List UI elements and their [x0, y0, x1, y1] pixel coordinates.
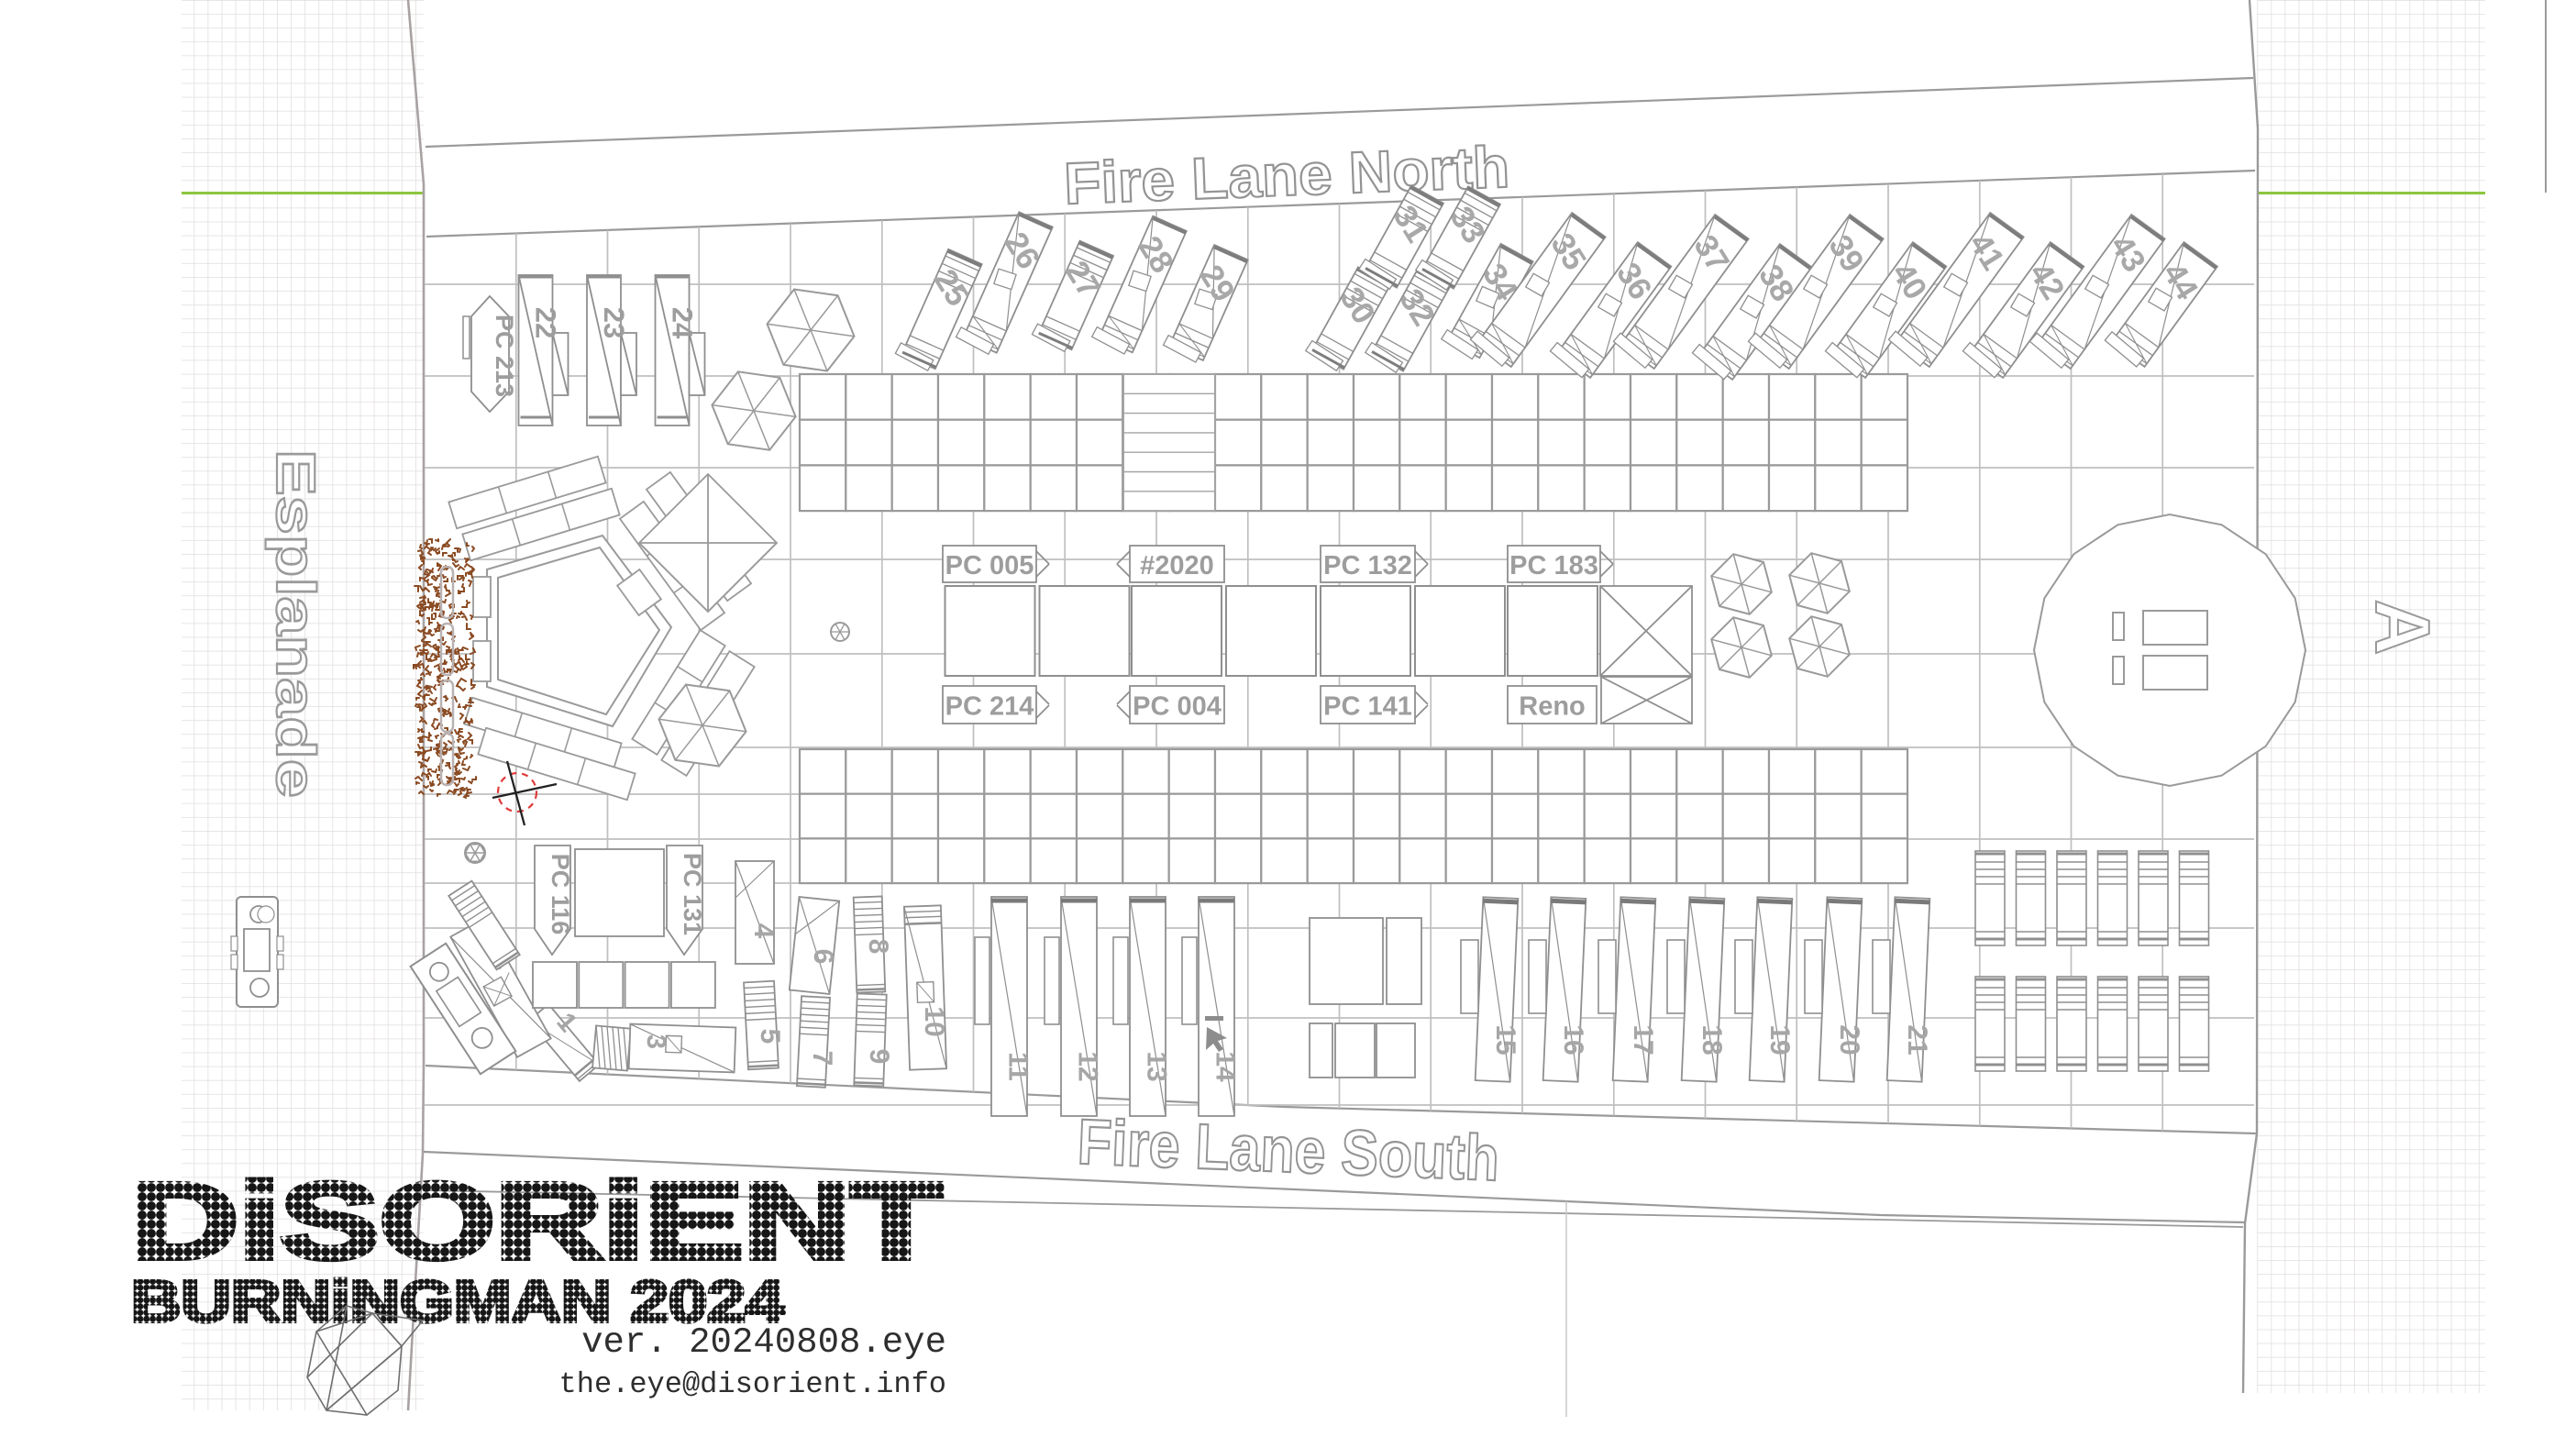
- svg-text:PC 132: PC 132: [1323, 551, 1412, 580]
- svg-text:19: 19: [1764, 1024, 1795, 1055]
- svg-text:9: 9: [864, 1049, 894, 1065]
- svg-text:15: 15: [1490, 1024, 1520, 1055]
- svg-text:24: 24: [667, 307, 699, 339]
- svg-text:Esplanade: Esplanade: [265, 449, 326, 798]
- svg-text:6: 6: [808, 949, 838, 965]
- svg-text:PC 004: PC 004: [1133, 692, 1222, 722]
- svg-text:10: 10: [919, 1006, 949, 1036]
- svg-text:22: 22: [530, 307, 562, 338]
- svg-text:8: 8: [863, 939, 893, 955]
- svg-text:#2020: #2020: [1140, 551, 1214, 580]
- svg-text:13: 13: [1142, 1051, 1172, 1081]
- svg-text:5: 5: [755, 1029, 785, 1045]
- svg-text:PC 131: PC 131: [679, 853, 706, 935]
- svg-text:PC 141: PC 141: [1323, 692, 1412, 722]
- svg-text:7: 7: [807, 1051, 837, 1067]
- svg-text:21: 21: [1902, 1024, 1932, 1055]
- svg-text:Reno: Reno: [1519, 692, 1586, 722]
- svg-text:A: A: [2360, 600, 2446, 656]
- svg-text:DiSORiENT: DiSORiENT: [131, 1161, 942, 1282]
- svg-text:PC 183: PC 183: [1509, 551, 1598, 580]
- svg-text:PC 213: PC 213: [491, 315, 518, 397]
- svg-text:23: 23: [598, 307, 630, 338]
- svg-text:PC 116: PC 116: [547, 854, 574, 935]
- svg-text:18: 18: [1697, 1024, 1727, 1055]
- svg-text:PC 214: PC 214: [945, 692, 1034, 722]
- svg-text:12: 12: [1073, 1051, 1103, 1081]
- svg-text:20: 20: [1834, 1024, 1864, 1055]
- svg-text:16: 16: [1558, 1024, 1588, 1055]
- svg-text:4: 4: [748, 923, 779, 939]
- svg-text:14: 14: [1211, 1051, 1241, 1082]
- svg-text:ver. 20240808.eye: ver. 20240808.eye: [581, 1322, 946, 1363]
- svg-text:the.eye@disorient.info: the.eye@disorient.info: [559, 1367, 946, 1401]
- svg-text:PC 005: PC 005: [945, 551, 1034, 580]
- svg-text:17: 17: [1628, 1024, 1658, 1055]
- svg-text:11: 11: [1003, 1052, 1034, 1081]
- svg-text:3: 3: [641, 1034, 670, 1049]
